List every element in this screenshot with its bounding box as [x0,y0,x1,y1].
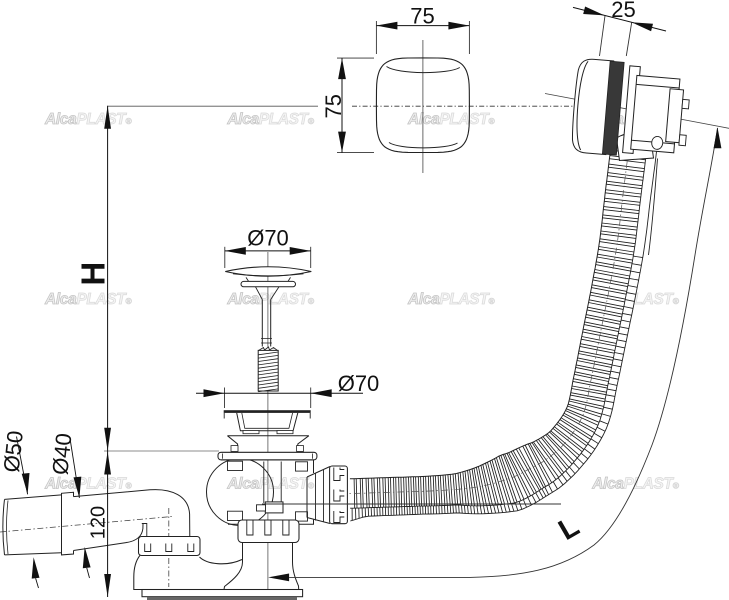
svg-text:AlcaPLAST®: AlcaPLAST® [44,291,132,308]
svg-text:AlcaPLAST®: AlcaPLAST® [44,111,132,128]
svg-text:Ø70: Ø70 [247,226,289,251]
svg-text:75: 75 [410,4,434,29]
svg-text:Ø70: Ø70 [338,371,380,396]
svg-text:AlcaPLAST®: AlcaPLAST® [44,476,132,493]
svg-text:H: H [74,262,111,286]
svg-text:75: 75 [321,94,346,118]
svg-text:Ø50: Ø50 [0,430,28,474]
svg-text:AlcaPLAST®: AlcaPLAST® [407,291,495,308]
svg-text:25: 25 [611,0,635,22]
svg-text:AlcaPLAST®: AlcaPLAST® [407,111,495,128]
svg-text:L: L [553,510,584,547]
svg-text:AlcaPLAST®: AlcaPLAST® [226,111,314,128]
svg-text:120: 120 [87,506,109,539]
svg-text:Ø40: Ø40 [47,432,76,476]
